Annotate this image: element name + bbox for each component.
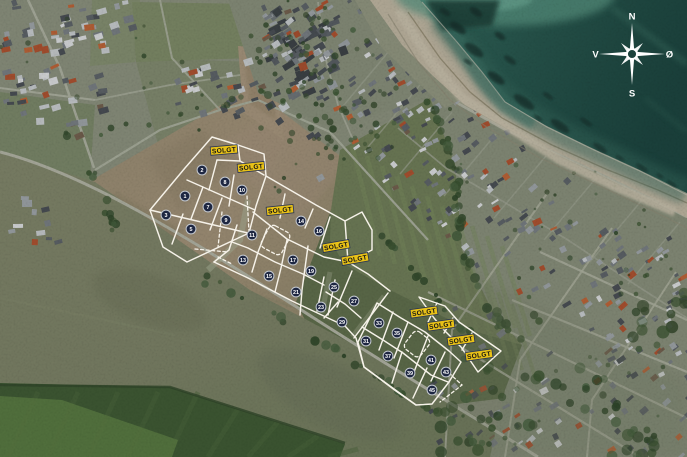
svg-text:27: 27 (351, 299, 357, 305)
svg-text:5: 5 (190, 227, 193, 233)
svg-text:41: 41 (428, 358, 434, 364)
svg-text:10: 10 (239, 188, 245, 194)
svg-text:25: 25 (331, 285, 337, 291)
svg-text:31: 31 (363, 339, 369, 345)
svg-text:1: 1 (184, 194, 187, 200)
svg-text:29: 29 (339, 320, 345, 326)
svg-text:8: 8 (224, 180, 227, 186)
svg-text:Ø: Ø (666, 49, 673, 60)
svg-text:35: 35 (394, 331, 400, 337)
svg-text:16: 16 (316, 229, 322, 235)
svg-text:17: 17 (290, 258, 296, 264)
svg-text:23: 23 (318, 305, 324, 311)
svg-text:43: 43 (443, 370, 449, 376)
svg-text:9: 9 (225, 218, 228, 224)
svg-text:39: 39 (407, 371, 413, 377)
svg-text:13: 13 (240, 258, 246, 264)
svg-text:7: 7 (207, 205, 210, 211)
svg-text:14: 14 (298, 219, 304, 225)
svg-text:21: 21 (293, 290, 299, 296)
svg-text:37: 37 (385, 354, 391, 360)
svg-text:15: 15 (266, 274, 272, 280)
svg-text:19: 19 (308, 269, 314, 275)
svg-text:2: 2 (201, 168, 204, 174)
svg-text:3: 3 (165, 213, 168, 219)
svg-text:V: V (592, 49, 599, 60)
svg-text:N: N (629, 12, 636, 23)
svg-text:S: S (629, 89, 635, 100)
svg-text:45: 45 (429, 388, 435, 394)
svg-text:33: 33 (376, 321, 382, 327)
svg-text:11: 11 (249, 233, 255, 239)
